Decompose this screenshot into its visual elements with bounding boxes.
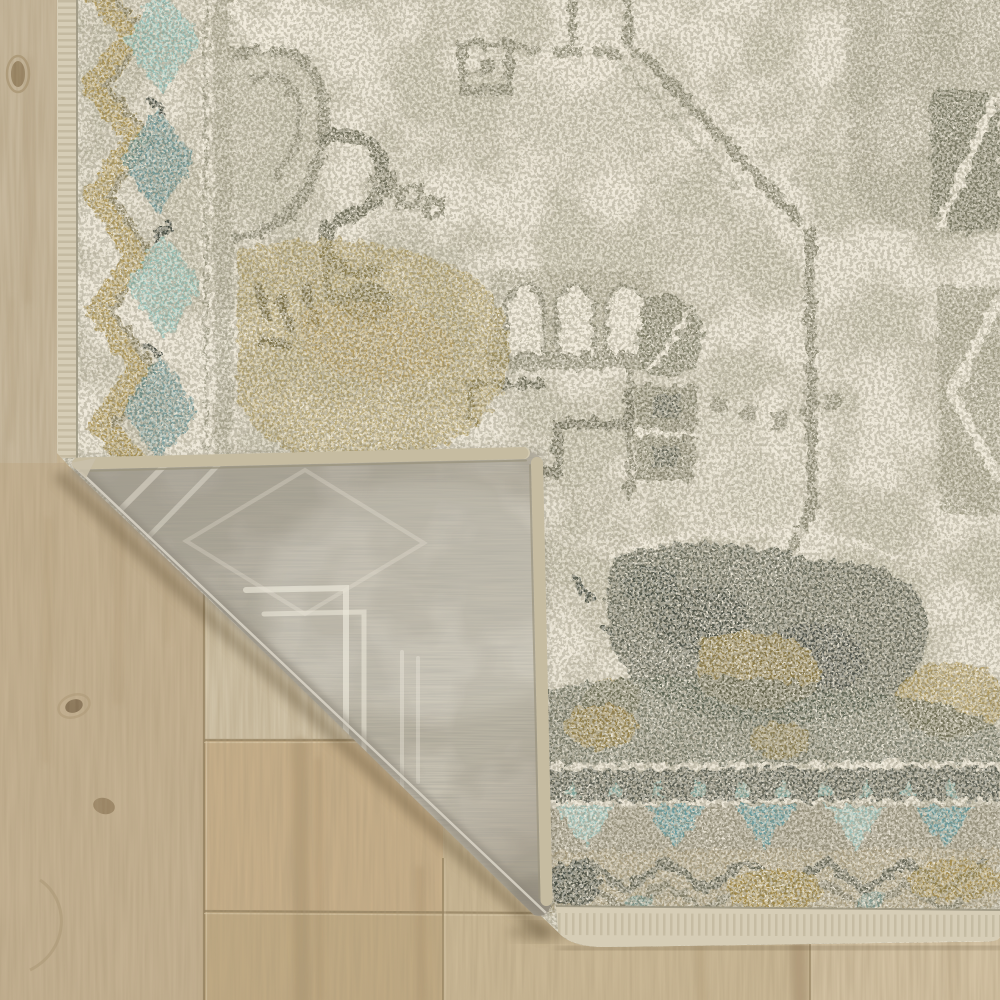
rug-product-photo: Close-up of a distressed oriental medall… <box>0 0 1000 1000</box>
rug-binding-bottom <box>556 906 1000 947</box>
rug-binding-left <box>57 0 77 458</box>
scene-canvas: Close-up of a distressed oriental medall… <box>0 0 1000 1000</box>
